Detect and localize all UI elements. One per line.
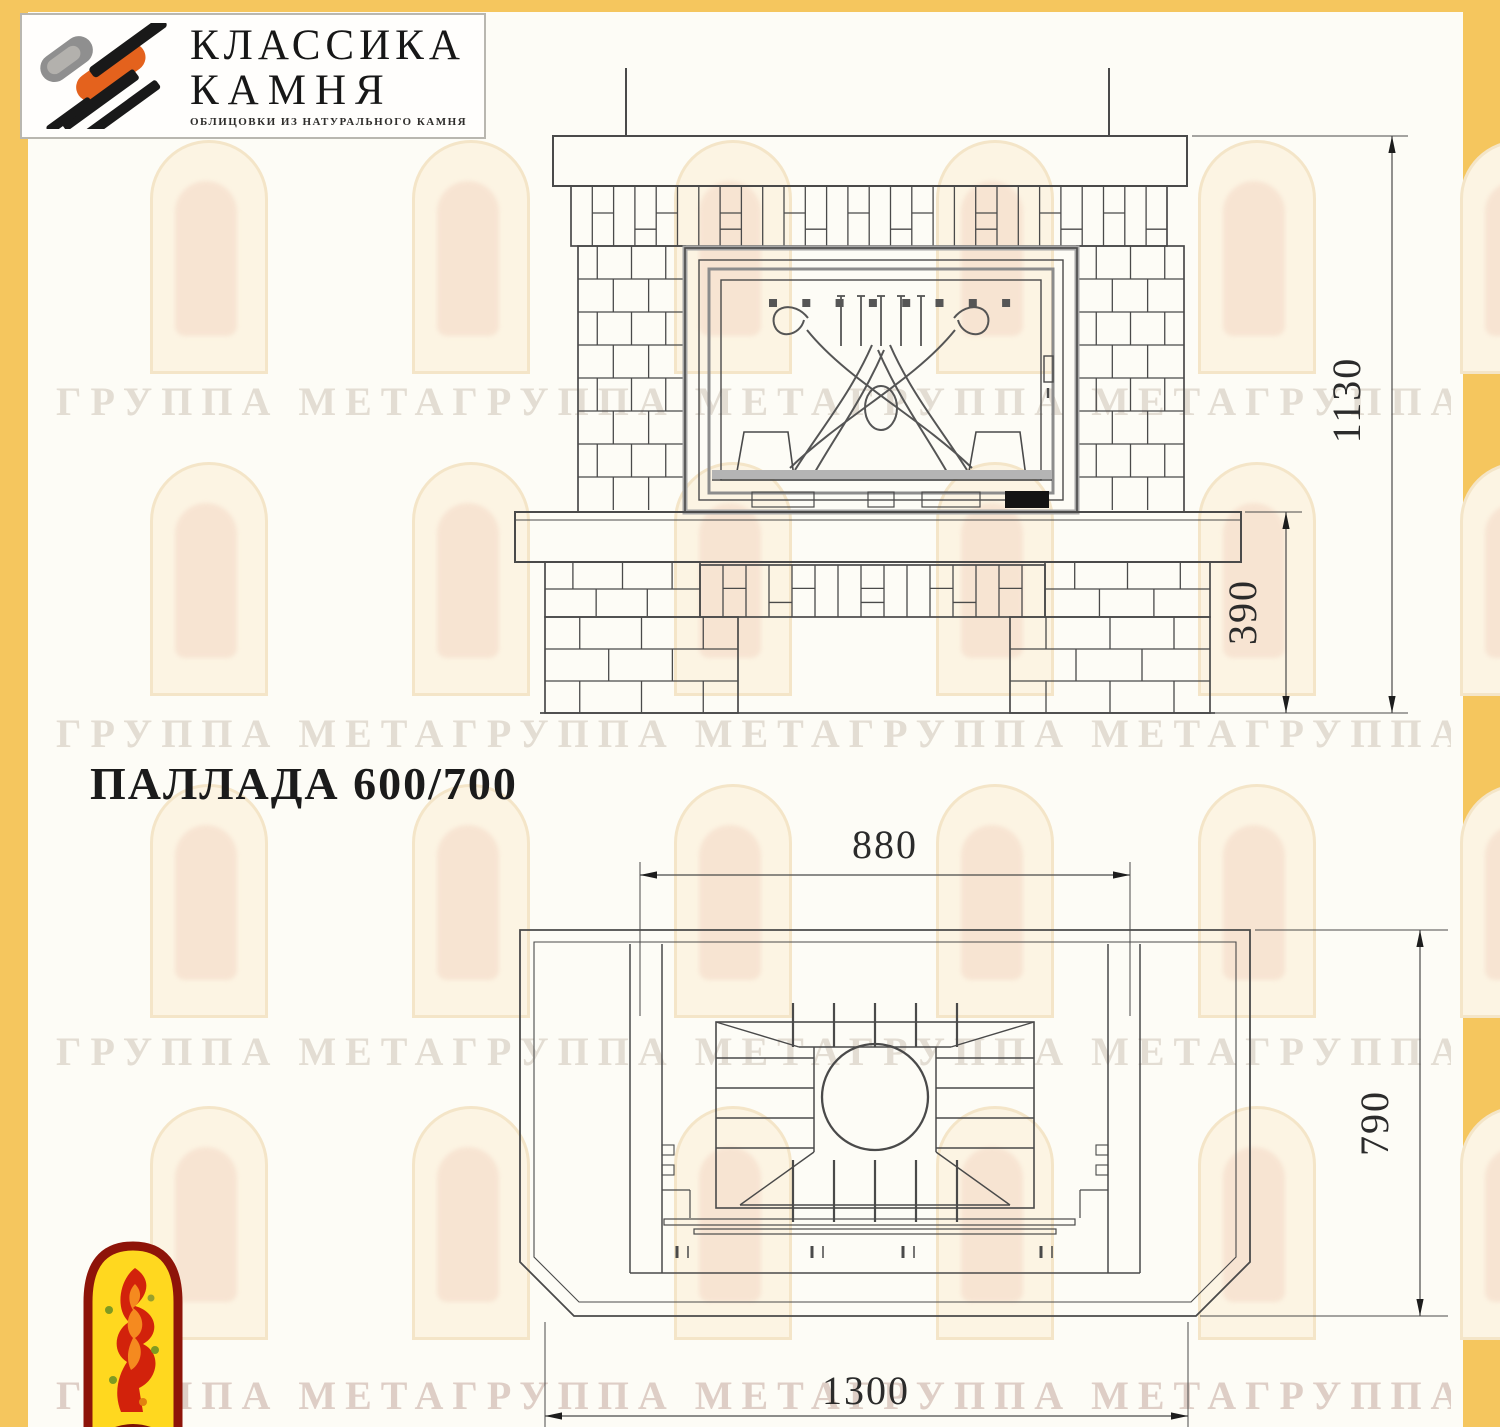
meta-flame-logo-icon xyxy=(83,1240,183,1427)
dim-front-height: 1130 xyxy=(1324,357,1369,444)
model-title: ПАЛЛАДА 600/700 xyxy=(90,757,518,810)
dim-plan-overall-width: 1300 xyxy=(822,1368,910,1413)
brand-name-line1: КЛАССИКА xyxy=(190,24,467,67)
brand-logo-box: КЛАССИКА КАМНЯ ОБЛИЦОВКИ ИЗ НАТУРАЛЬНОГО… xyxy=(20,13,486,139)
drawing-sheet: ГРУППА МЕТАГРУППА МЕТАГРУППА МЕТАГРУППА … xyxy=(0,0,1500,1427)
fireplace-technical-drawing: 1130 390 880 790 1300 xyxy=(0,0,1500,1427)
dim-plinth-height: 390 xyxy=(1220,579,1265,645)
stone-logo-icon xyxy=(28,23,188,129)
brand-tagline: ОБЛИЦОВКИ ИЗ НАТУРАЛЬНОГО КАМНЯ xyxy=(190,116,467,128)
brand-name-line2: КАМНЯ xyxy=(190,69,467,112)
dim-plan-depth: 790 xyxy=(1352,1090,1397,1156)
dim-plan-firebox-width: 880 xyxy=(852,822,918,867)
